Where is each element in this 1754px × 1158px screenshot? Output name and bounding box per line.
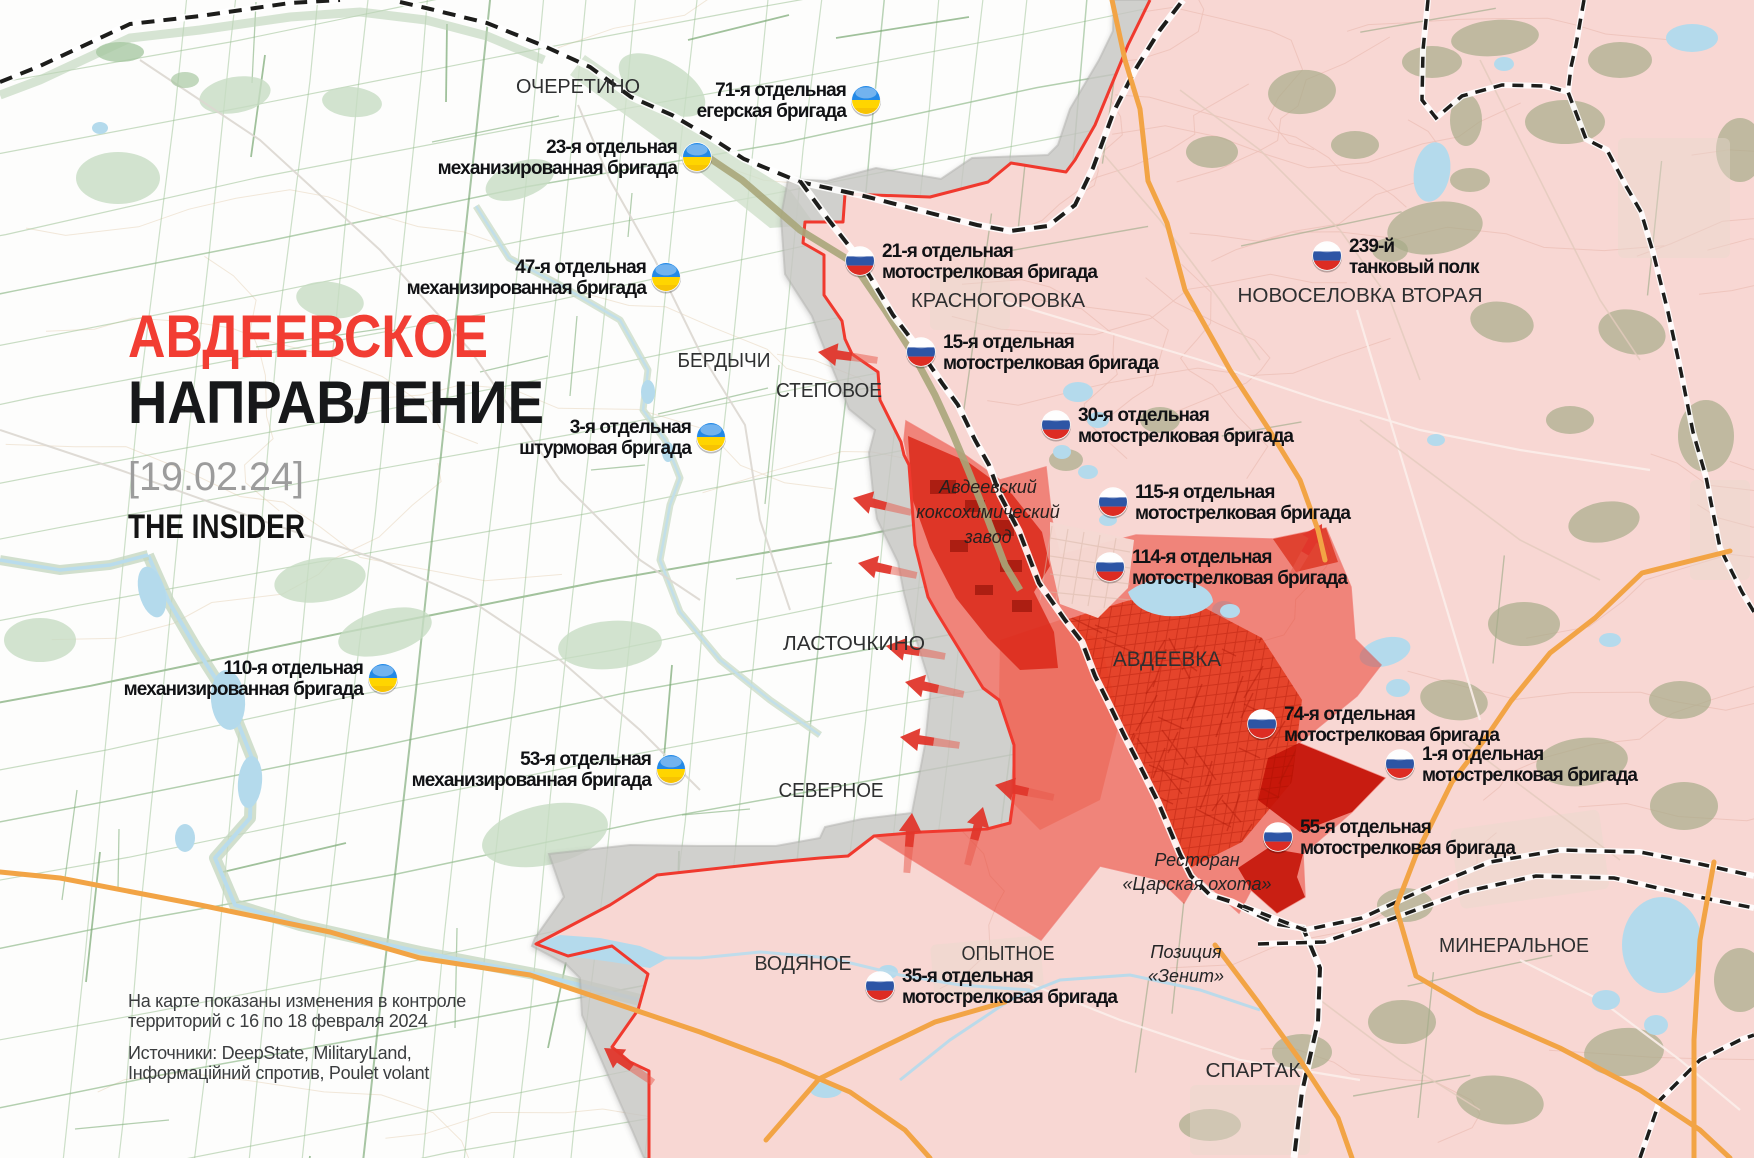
- svg-text:АВДЕЕВКА: АВДЕЕВКА: [1113, 648, 1221, 671]
- svg-text:БЕРДЫЧИ: БЕРДЫЧИ: [678, 350, 771, 372]
- svg-text:ОПЫТНОЕ: ОПЫТНОЕ: [962, 943, 1055, 965]
- svg-text:ЛАСТОЧКИНО: ЛАСТОЧКИНО: [783, 633, 925, 655]
- svg-text:Источники: DeepState, Military: Источники: DeepState, MilitaryLand,: [128, 1043, 412, 1063]
- svg-text:71-я отдельнаяегерская бригада: 71-я отдельнаяегерская бригада: [697, 80, 848, 122]
- svg-text:НАПРАВЛЕНИЕ: НАПРАВЛЕНИЕ: [128, 369, 544, 436]
- svg-text:[19.02.24]: [19.02.24]: [128, 455, 304, 499]
- svg-text:АВДЕЕВСКОЕ: АВДЕЕВСКОЕ: [128, 303, 488, 370]
- svg-text:ВОДЯНОЕ: ВОДЯНОЕ: [755, 953, 852, 975]
- svg-text:МИНЕРАЛЬНОЕ: МИНЕРАЛЬНОЕ: [1439, 935, 1589, 957]
- svg-text:СПАРТАК: СПАРТАК: [1206, 1060, 1301, 1082]
- svg-text:ОЧЕРЕТИНО: ОЧЕРЕТИНО: [516, 76, 640, 98]
- svg-text:территорий с 16 по 18 февраля: территорий с 16 по 18 февраля 2024: [128, 1011, 428, 1031]
- svg-text:THE INSIDER: THE INSIDER: [128, 508, 305, 546]
- svg-text:Інформаційний спротив, Poulet: Інформаційний спротив, Poulet volant: [128, 1063, 429, 1083]
- svg-text:КРАСНОГОРОВКА: КРАСНОГОРОВКА: [911, 290, 1086, 312]
- svg-text:СТЕПОВОЕ: СТЕПОВОЕ: [776, 380, 882, 402]
- svg-text:На карте показаны изменения в: На карте показаны изменения в контроле: [128, 991, 466, 1011]
- svg-text:СЕВЕРНОЕ: СЕВЕРНОЕ: [779, 780, 884, 802]
- svg-text:НОВОСЕЛОВКА ВТОРАЯ: НОВОСЕЛОВКА ВТОРАЯ: [1238, 285, 1483, 307]
